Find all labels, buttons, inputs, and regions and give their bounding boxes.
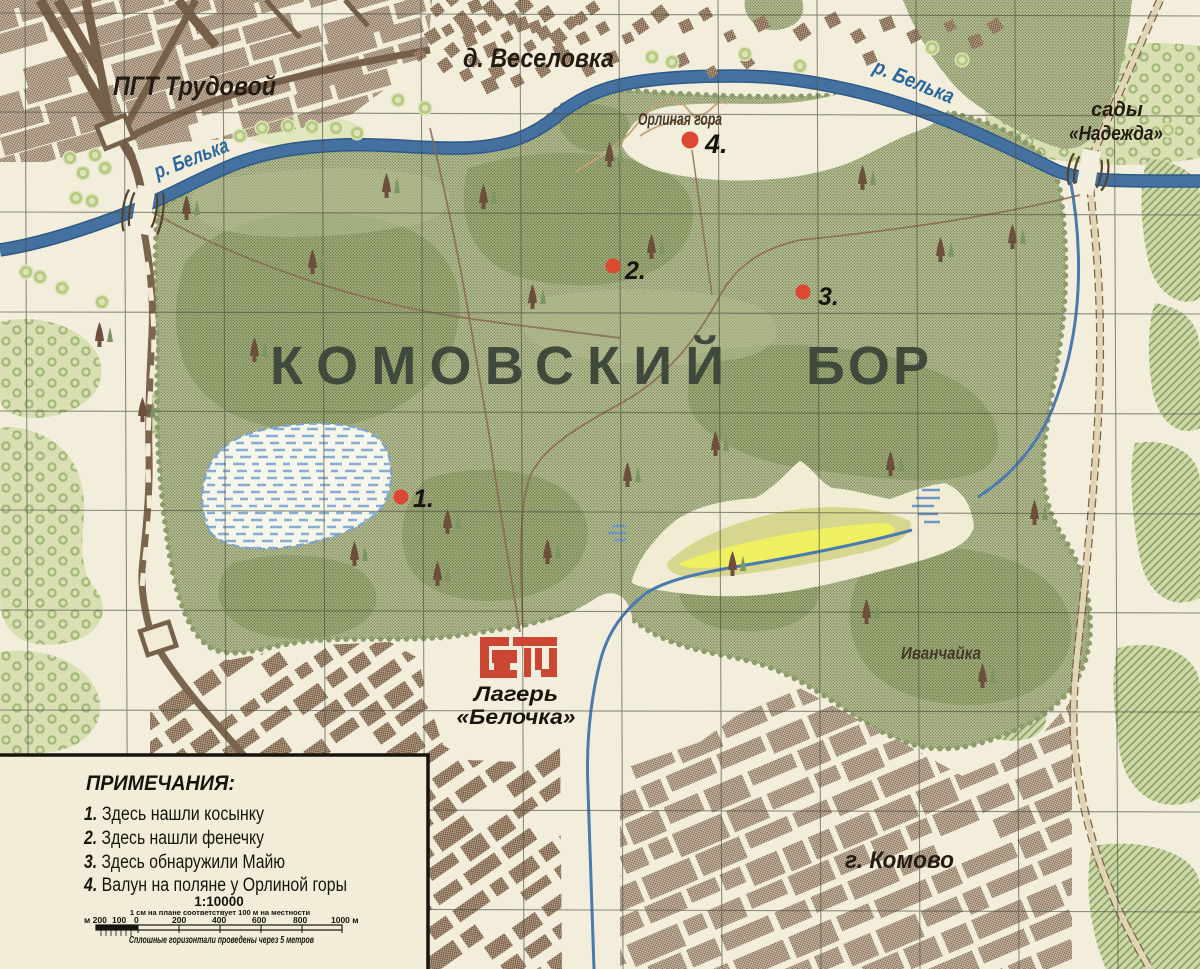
svg-text:1. Здесь нашли косынку: 1. Здесь нашли косынку bbox=[84, 804, 264, 825]
svg-text:Иванчайка: Иванчайка bbox=[901, 643, 981, 663]
svg-text:д. Веселовка: д. Веселовка bbox=[463, 43, 614, 73]
svg-text:Сплошные горизонтали проведены: Сплошные горизонтали проведены через 5 м… bbox=[129, 934, 314, 946]
svg-text:3. Здесь обнаружили Майю: 3. Здесь обнаружили Майю bbox=[84, 852, 285, 873]
svg-text:200: 200 bbox=[172, 915, 186, 925]
svg-text:м 200: м 200 bbox=[84, 915, 107, 925]
svg-text:4. Валун на поляне у Орлиной г: 4. Валун на поляне у Орлиной горы bbox=[83, 875, 347, 896]
svg-text:0: 0 bbox=[134, 915, 139, 925]
svg-text:ПГТ Трудовой: ПГТ Трудовой bbox=[113, 71, 276, 101]
svg-text:г. Комово: г. Комово bbox=[845, 847, 954, 874]
svg-text:4.: 4. bbox=[704, 129, 728, 159]
svg-text:«Белочка»: «Белочка» bbox=[457, 705, 576, 729]
svg-text:1:10000: 1:10000 bbox=[194, 894, 244, 909]
svg-text:1000 м: 1000 м bbox=[331, 915, 359, 925]
svg-text:2.: 2. bbox=[624, 257, 646, 285]
svg-text:600: 600 bbox=[252, 915, 266, 925]
svg-text:400: 400 bbox=[212, 915, 226, 925]
svg-text:3.: 3. bbox=[818, 283, 839, 311]
svg-text:ПРИМЕЧАНИЯ:: ПРИМЕЧАНИЯ: bbox=[86, 772, 235, 795]
svg-text:БОР: БОР bbox=[806, 336, 929, 396]
svg-text:«Надежда»: «Надежда» bbox=[1069, 123, 1163, 145]
svg-text:100: 100 bbox=[112, 915, 126, 925]
svg-text:Лагерь: Лагерь bbox=[472, 682, 558, 706]
svg-text:1.: 1. bbox=[413, 485, 434, 513]
svg-text:Орлиная гора: Орлиная гора bbox=[638, 109, 722, 129]
svg-text:КОМОВСКИЙ: КОМОВСКИЙ bbox=[270, 335, 724, 396]
svg-text:2. Здесь нашли фенечку: 2. Здесь нашли фенечку bbox=[83, 828, 264, 849]
svg-text:800: 800 bbox=[293, 915, 307, 925]
svg-text:сады: сады bbox=[1091, 99, 1143, 121]
